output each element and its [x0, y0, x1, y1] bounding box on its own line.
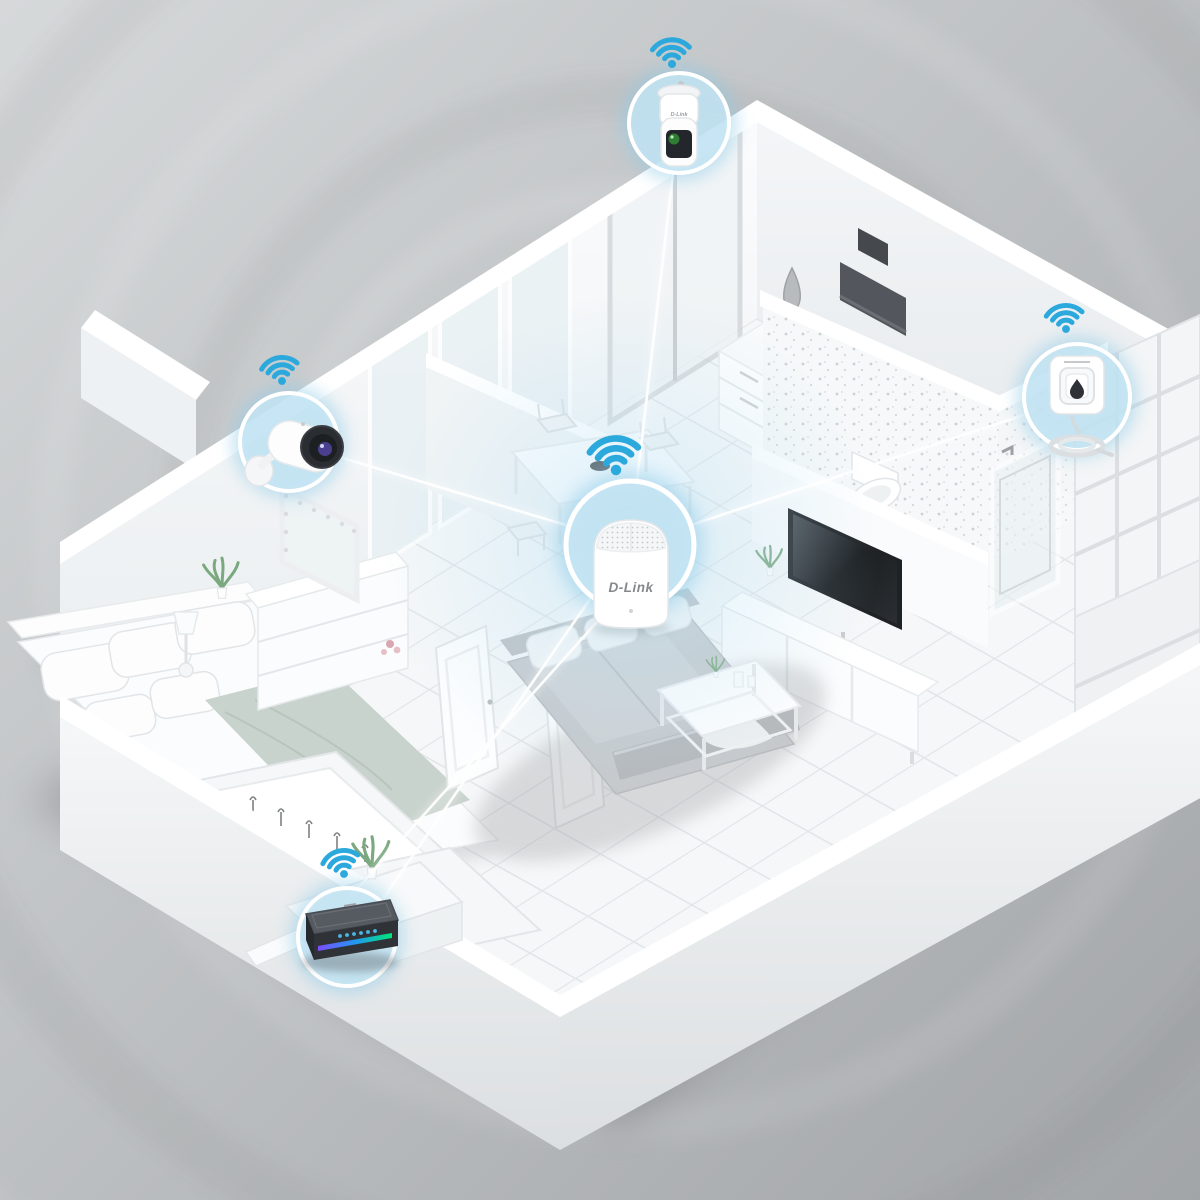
outdoor-camera-logo: D-Link — [670, 112, 688, 118]
router-device: D-Link — [591, 520, 671, 636]
outdoor-camera-device: D-Link — [658, 81, 700, 166]
router-logo: D-Link — [609, 580, 655, 595]
smart-home-illustration: D-Link D-Link — [0, 0, 1200, 1200]
shower — [992, 438, 1058, 614]
